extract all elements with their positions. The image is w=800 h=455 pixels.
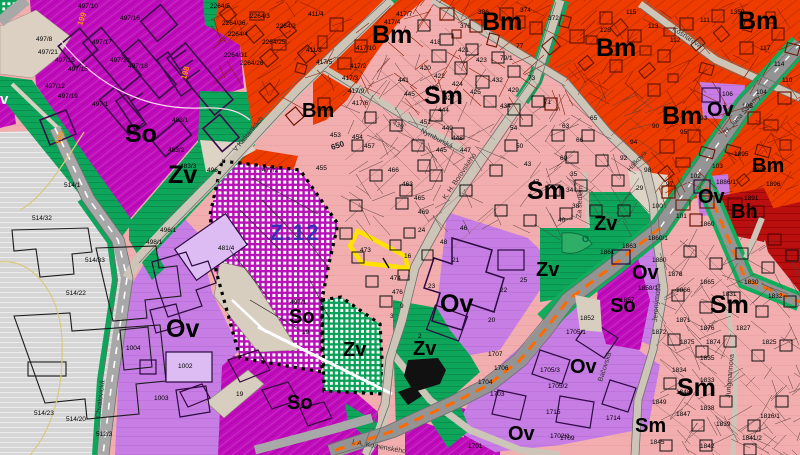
svg-text:1842: 1842 — [700, 443, 715, 450]
svg-text:451: 451 — [420, 119, 431, 126]
svg-text:102: 102 — [690, 173, 701, 180]
svg-text:1714: 1714 — [606, 415, 621, 422]
svg-text:Sm: Sm — [635, 415, 666, 437]
svg-text:445: 445 — [436, 147, 447, 154]
svg-text:Zv: Zv — [343, 339, 367, 361]
svg-text:1849: 1849 — [652, 399, 667, 406]
svg-text:O: O — [582, 234, 589, 244]
svg-text:So: So — [289, 306, 315, 328]
svg-text:465: 465 — [414, 195, 425, 202]
svg-text:497/12: 497/12 — [45, 83, 65, 90]
svg-text:112: 112 — [670, 37, 681, 44]
svg-text:1705/3: 1705/3 — [540, 367, 560, 374]
svg-text:23: 23 — [428, 283, 436, 290]
svg-text:418: 418 — [430, 39, 441, 46]
svg-text:417/3: 417/3 — [342, 75, 359, 82]
svg-text:1875: 1875 — [680, 339, 695, 346]
svg-text:2264/26: 2264/26 — [240, 60, 264, 67]
svg-text:Zv: Zv — [168, 161, 197, 189]
svg-text:65: 65 — [590, 115, 598, 122]
svg-text:2264/31: 2264/31 — [224, 52, 248, 59]
svg-text:417/6: 417/6 — [352, 100, 369, 107]
svg-text:1702/1: 1702/1 — [550, 433, 570, 440]
svg-text:1872: 1872 — [652, 329, 667, 336]
svg-text:1847: 1847 — [676, 411, 691, 418]
svg-text:110: 110 — [782, 77, 793, 84]
svg-text:2264/4: 2264/4 — [228, 31, 248, 38]
svg-text:2264/2: 2264/2 — [276, 23, 296, 30]
svg-text:498/1: 498/1 — [146, 239, 163, 246]
svg-text:100: 100 — [652, 203, 663, 210]
svg-text:1895: 1895 — [734, 151, 749, 158]
svg-text:1004: 1004 — [126, 345, 141, 352]
svg-text:101: 101 — [676, 213, 687, 220]
svg-text:97: 97 — [666, 181, 674, 188]
svg-text:Bm: Bm — [662, 102, 702, 130]
svg-text:Bm: Bm — [596, 34, 636, 62]
svg-text:113: 113 — [648, 23, 659, 30]
svg-text:447: 447 — [460, 147, 471, 154]
svg-text:1705/1: 1705/1 — [566, 329, 586, 336]
svg-text:Ov: Ov — [570, 356, 598, 378]
svg-text:1871: 1871 — [676, 317, 691, 324]
svg-text:1704: 1704 — [478, 379, 493, 386]
svg-text:1825: 1825 — [762, 339, 777, 346]
svg-text:429: 429 — [508, 87, 519, 94]
svg-text:50: 50 — [516, 143, 524, 150]
svg-text:19: 19 — [236, 391, 244, 398]
svg-text:Bm: Bm — [738, 7, 778, 35]
svg-text:117: 117 — [760, 45, 771, 52]
svg-text:1827: 1827 — [736, 325, 751, 332]
svg-text:497/10: 497/10 — [78, 3, 98, 10]
svg-text:1866: 1866 — [676, 287, 691, 294]
svg-text:417/7: 417/7 — [396, 11, 413, 18]
svg-text:445: 445 — [404, 91, 415, 98]
svg-text:481/4: 481/4 — [218, 245, 235, 252]
svg-text:1886/1: 1886/1 — [716, 179, 736, 186]
svg-text:497/1: 497/1 — [290, 299, 307, 306]
svg-text:1845: 1845 — [650, 439, 665, 446]
svg-text:So: So — [125, 120, 157, 148]
svg-text:417/2: 417/2 — [350, 63, 367, 70]
svg-text:So: So — [610, 295, 636, 317]
svg-text:Sm: Sm — [710, 291, 749, 319]
svg-text:372: 372 — [548, 15, 559, 22]
svg-text:Bh: Bh — [731, 201, 758, 223]
svg-text:16: 16 — [404, 253, 412, 260]
svg-text:1861: 1861 — [600, 249, 615, 256]
svg-text:71: 71 — [544, 99, 552, 106]
svg-text:474: 474 — [390, 275, 401, 282]
svg-text:496/1: 496/1 — [160, 227, 177, 234]
svg-text:514/23: 514/23 — [34, 410, 54, 417]
svg-text:Ov: Ov — [508, 423, 536, 445]
svg-text:104: 104 — [756, 89, 767, 96]
svg-text:432: 432 — [492, 77, 503, 84]
svg-text:34: 34 — [566, 187, 574, 194]
svg-text:105: 105 — [742, 103, 753, 110]
svg-text:1874: 1874 — [706, 339, 721, 346]
svg-text:1839: 1839 — [716, 421, 731, 428]
svg-text:3: 3 — [390, 313, 394, 320]
svg-text:453: 453 — [330, 132, 341, 139]
svg-text:48: 48 — [440, 239, 448, 246]
svg-text:1834: 1834 — [672, 367, 687, 374]
svg-text:1860: 1860 — [700, 221, 715, 228]
svg-text:455: 455 — [316, 165, 327, 172]
svg-text:v: v — [0, 91, 9, 108]
svg-text:514/22: 514/22 — [66, 290, 86, 297]
svg-text:469: 469 — [418, 209, 429, 216]
svg-text:114: 114 — [774, 61, 785, 68]
svg-text:So: So — [287, 392, 313, 414]
svg-text:20: 20 — [488, 317, 496, 324]
svg-text:1858/1: 1858/1 — [638, 285, 658, 292]
svg-text:514/1: 514/1 — [64, 182, 81, 189]
svg-text:25: 25 — [520, 277, 528, 284]
svg-text:483/1: 483/1 — [172, 117, 189, 124]
svg-text:1701: 1701 — [468, 443, 483, 450]
svg-text:457: 457 — [364, 143, 375, 150]
svg-text:95: 95 — [680, 129, 688, 136]
svg-text:376: 376 — [460, 23, 471, 30]
svg-text:420: 420 — [420, 65, 431, 72]
svg-text:1707: 1707 — [488, 351, 503, 358]
svg-text:497/8: 497/8 — [36, 36, 53, 43]
svg-text:54: 54 — [510, 125, 518, 132]
svg-text:77: 77 — [516, 43, 524, 50]
svg-text:1816/1: 1816/1 — [760, 413, 780, 420]
svg-text:43: 43 — [524, 161, 532, 168]
svg-text:1830: 1830 — [744, 279, 759, 286]
svg-text:Zv: Zv — [413, 338, 437, 360]
svg-text:434: 434 — [500, 103, 511, 110]
svg-text:Ov: Ov — [632, 262, 660, 284]
svg-text:514/32: 514/32 — [32, 215, 52, 222]
svg-text:1865: 1865 — [700, 279, 715, 286]
svg-text:Ov: Ov — [707, 99, 735, 121]
svg-text:449: 449 — [442, 125, 453, 132]
svg-text:514/33: 514/33 — [85, 257, 105, 264]
svg-text:9: 9 — [400, 303, 404, 310]
svg-text:1706: 1706 — [494, 365, 509, 372]
svg-text:512/3: 512/3 — [96, 431, 113, 438]
svg-text:483/2: 483/2 — [168, 147, 185, 154]
svg-text:Zv: Zv — [536, 259, 560, 281]
svg-text:94: 94 — [630, 139, 638, 146]
svg-text:514/20: 514/20 — [66, 416, 86, 423]
svg-text:1860/1: 1860/1 — [648, 235, 668, 242]
svg-text:497/16: 497/16 — [120, 15, 140, 22]
svg-text:422: 422 — [434, 73, 445, 80]
svg-text:Bm: Bm — [302, 100, 334, 122]
svg-text:441: 441 — [398, 77, 409, 84]
svg-text:Sm: Sm — [527, 177, 566, 205]
svg-text:2264/36: 2264/36 — [222, 20, 246, 27]
svg-text:Sm: Sm — [677, 374, 716, 402]
svg-text:448: 448 — [452, 135, 463, 142]
svg-text:Z.12: Z.12 — [270, 220, 320, 245]
svg-text:79/1: 79/1 — [500, 55, 513, 62]
svg-text:1715: 1715 — [546, 409, 561, 416]
svg-text:497/19: 497/19 — [58, 93, 78, 100]
svg-text:Ov: Ov — [440, 290, 473, 318]
svg-text:98: 98 — [644, 167, 652, 174]
svg-text:Ov: Ov — [166, 315, 199, 343]
svg-text:411/4: 411/4 — [308, 11, 324, 18]
svg-text:497/18: 497/18 — [128, 63, 148, 70]
svg-text:423: 423 — [476, 57, 487, 64]
svg-text:24: 24 — [418, 227, 426, 234]
svg-text:22: 22 — [500, 287, 508, 294]
svg-text:Bm: Bm — [372, 21, 412, 49]
svg-text:1852: 1852 — [580, 315, 595, 322]
svg-text:473: 473 — [360, 247, 371, 254]
svg-text:1832: 1832 — [768, 293, 783, 300]
svg-text:454: 454 — [352, 134, 363, 141]
svg-text:1835: 1835 — [700, 355, 715, 362]
svg-text:421: 421 — [458, 47, 469, 54]
svg-text:476: 476 — [392, 289, 403, 296]
svg-text:21: 21 — [452, 257, 460, 264]
svg-text:Zv: Zv — [594, 213, 618, 235]
svg-text:63: 63 — [562, 123, 570, 130]
svg-text:466: 466 — [388, 167, 399, 174]
svg-text:1703: 1703 — [490, 391, 505, 398]
svg-text:463: 463 — [402, 181, 413, 188]
svg-text:92: 92 — [620, 155, 628, 162]
svg-text:90: 90 — [652, 123, 660, 130]
svg-text:477/2: 477/2 — [262, 167, 279, 174]
svg-text:497/13: 497/13 — [55, 57, 75, 64]
svg-text:2264/5: 2264/5 — [210, 3, 230, 10]
svg-text:1002: 1002 — [178, 363, 193, 370]
svg-text:38: 38 — [572, 203, 580, 210]
svg-text:35: 35 — [570, 171, 578, 178]
svg-text:497/17: 497/17 — [92, 39, 112, 46]
svg-text:1705/2: 1705/2 — [548, 383, 568, 390]
svg-text:46: 46 — [460, 225, 468, 232]
svg-text:111: 111 — [700, 17, 710, 24]
svg-text:Sm: Sm — [424, 82, 463, 110]
svg-text:496: 496 — [207, 167, 218, 174]
svg-text:497/21: 497/21 — [38, 49, 58, 56]
svg-text:Bm: Bm — [752, 155, 784, 177]
svg-text:411/8: 411/8 — [306, 47, 322, 54]
svg-text:40: 40 — [558, 217, 566, 224]
svg-text:66: 66 — [576, 137, 584, 144]
svg-text:73: 73 — [528, 75, 536, 82]
svg-text:1878: 1878 — [668, 271, 683, 278]
svg-text:Bm: Bm — [482, 8, 522, 36]
svg-text:497/1: 497/1 — [92, 101, 109, 108]
svg-text:1003: 1003 — [154, 395, 169, 402]
svg-text:60: 60 — [560, 155, 568, 162]
svg-text:29: 29 — [636, 185, 644, 192]
svg-text:425: 425 — [470, 89, 481, 96]
svg-text:417/9: 417/9 — [348, 88, 365, 95]
svg-text:115: 115 — [626, 9, 637, 16]
svg-text:1841/2: 1841/2 — [742, 435, 762, 442]
svg-text:417/5: 417/5 — [316, 59, 333, 66]
svg-text:128: 128 — [600, 27, 611, 34]
svg-text:1876: 1876 — [700, 325, 715, 332]
svg-text:2264/3: 2264/3 — [250, 13, 270, 20]
svg-text:1863: 1863 — [622, 243, 637, 250]
svg-text:1838: 1838 — [700, 405, 715, 412]
svg-text:Ov: Ov — [698, 186, 726, 208]
svg-text:103: 103 — [712, 163, 723, 170]
svg-text:19: 19 — [302, 329, 310, 336]
svg-text:106: 106 — [722, 91, 733, 98]
svg-text:2264/25: 2264/25 — [262, 39, 286, 46]
svg-text:1896: 1896 — [766, 181, 781, 188]
svg-text:497/15: 497/15 — [68, 66, 88, 73]
